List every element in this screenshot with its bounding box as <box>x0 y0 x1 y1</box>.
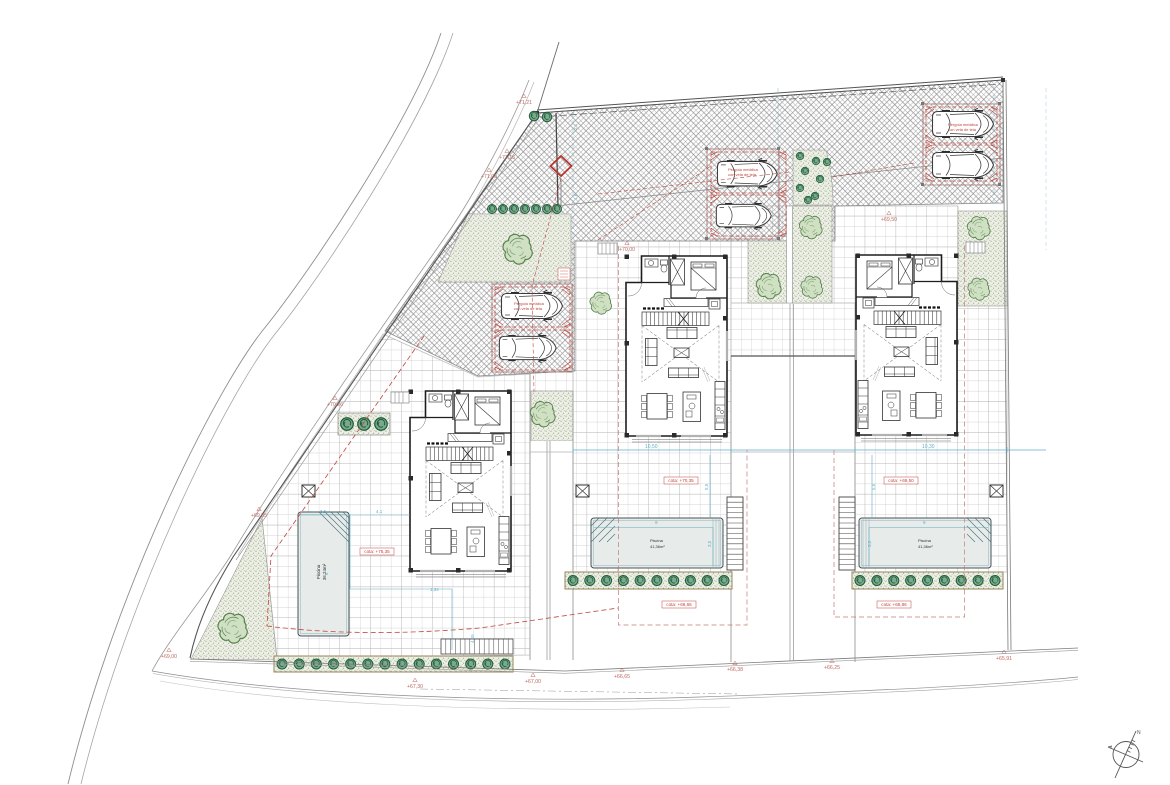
svg-text:3,5: 3,5 <box>867 540 872 547</box>
svg-text:cota: +66,65: cota: +66,65 <box>666 602 692 607</box>
svg-text:+71,08: +71,08 <box>481 174 497 180</box>
svg-text:36,24m²: 36,24m² <box>322 563 327 580</box>
svg-text:+71,21: +71,21 <box>516 100 532 106</box>
svg-text:Piscina: Piscina <box>316 564 321 579</box>
svg-text:con vela de tela: con vela de tela <box>728 172 757 177</box>
svg-text:10,50: 10,50 <box>645 444 658 450</box>
svg-text:4,65: 4,65 <box>470 634 475 643</box>
svg-text:41,36m²: 41,36m² <box>918 544 933 549</box>
svg-text:+69,00: +69,00 <box>161 654 177 660</box>
svg-text:1,6: 1,6 <box>573 193 578 200</box>
svg-text:con vela de tela: con vela de tela <box>948 127 977 132</box>
svg-text:+69,85: +69,85 <box>251 513 267 519</box>
svg-text:N: N <box>1137 730 1141 736</box>
svg-text:+70,00: +70,00 <box>619 247 635 253</box>
svg-text:5,5: 5,5 <box>871 483 876 490</box>
svg-text:+65,91: +65,91 <box>996 656 1012 662</box>
svg-text:+66,65: +66,65 <box>614 674 630 680</box>
svg-text:2,1: 2,1 <box>573 123 578 130</box>
svg-text:+67,00: +67,00 <box>525 679 541 685</box>
svg-text:cota: +69,50: cota: +69,50 <box>888 478 914 483</box>
svg-text:con vela de tela: con vela de tela <box>514 306 543 311</box>
svg-text:+66,38: +66,38 <box>727 667 743 673</box>
svg-text:+71,15: +71,15 <box>499 155 515 161</box>
svg-text:3,5: 3,5 <box>320 509 327 514</box>
svg-text:5,5: 5,5 <box>704 483 709 490</box>
svg-text:1,34: 1,34 <box>430 587 439 592</box>
svg-text:+69,50: +69,50 <box>881 217 897 223</box>
svg-text:10,30: 10,30 <box>922 444 935 450</box>
svg-text:4,1: 4,1 <box>376 509 383 514</box>
svg-text:cota: +75,35: cota: +75,35 <box>364 549 390 554</box>
svg-text:+66,25: +66,25 <box>824 665 840 671</box>
svg-text:41,36m²: 41,36m² <box>650 544 665 549</box>
svg-text:Piscina: Piscina <box>650 538 664 543</box>
svg-text:+70,26: +70,26 <box>327 402 343 408</box>
svg-text:3,5: 3,5 <box>707 540 712 547</box>
svg-text:cota: +70,35: cota: +70,35 <box>668 478 694 483</box>
svg-text:Piscina: Piscina <box>918 538 932 543</box>
svg-text:cota: +65,86: cota: +65,86 <box>881 602 907 607</box>
